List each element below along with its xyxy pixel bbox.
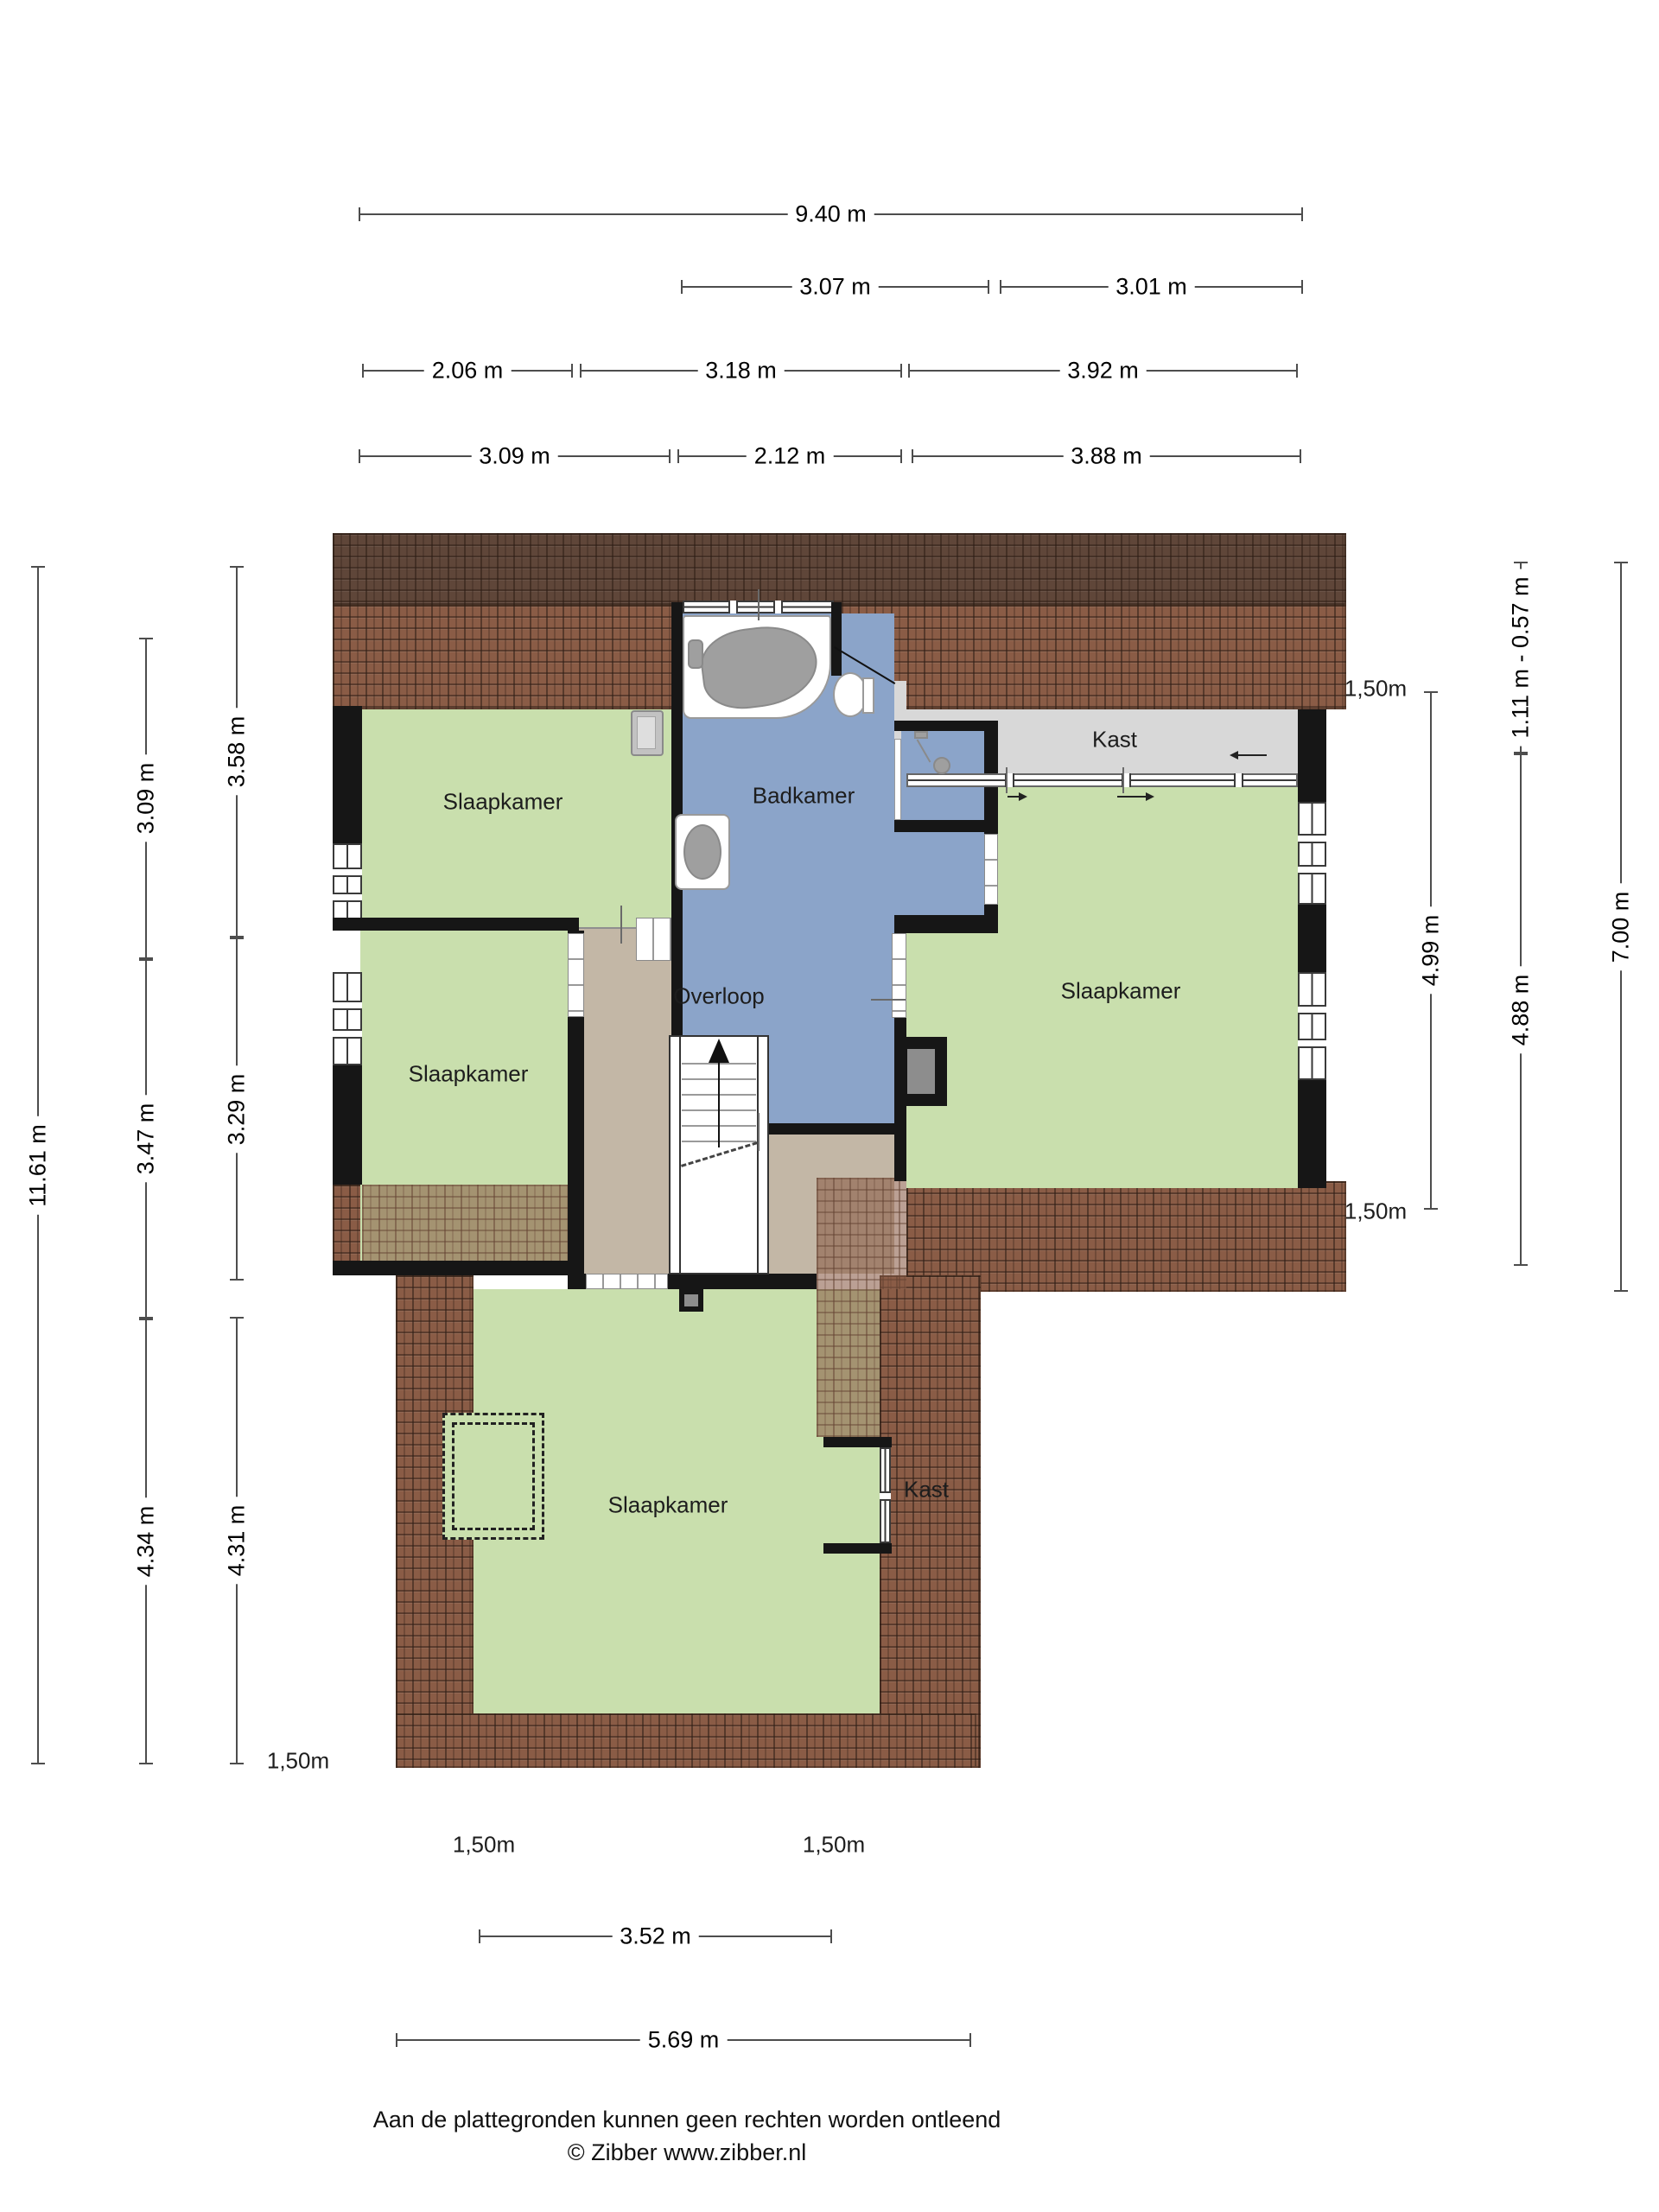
room-label-closet-bottom: Kast bbox=[904, 1477, 949, 1503]
wall-shower-top bbox=[894, 721, 998, 731]
ref-tick bbox=[758, 1113, 760, 1151]
window-closet-bottom bbox=[880, 1447, 891, 1543]
stair-stringer-left bbox=[679, 1035, 681, 1274]
wall bbox=[1298, 709, 1326, 802]
passage-topleft-bedroom bbox=[636, 918, 671, 961]
room-label-landing: Overloop bbox=[673, 983, 765, 1010]
room-label-bedroom-right: Slaapkamer bbox=[1061, 978, 1181, 1005]
dimension-label: 1.11 m - 0.57 m bbox=[1508, 569, 1535, 746]
dimension-label: 2.12 m bbox=[747, 443, 834, 470]
wall-shower-bottom bbox=[894, 820, 984, 832]
credit-text: © Zibber www.zibber.nl bbox=[568, 2139, 807, 2166]
dimension-label: 3.09 m bbox=[133, 755, 160, 842]
wall bbox=[1298, 1080, 1326, 1188]
floorplan-canvas: Slaapkamer Badkamer Kast Slaapkamer Over… bbox=[0, 0, 1659, 2212]
room-label-bedroom-top-left: Slaapkamer bbox=[443, 789, 563, 816]
dimension-label: 3.29 m bbox=[224, 1065, 251, 1153]
ref-tick bbox=[758, 589, 760, 620]
wall-closet-bottom-stub-bottom bbox=[823, 1543, 892, 1554]
shower-valve bbox=[914, 731, 928, 739]
wall bbox=[984, 905, 998, 933]
dimension-label: 3.52 m bbox=[612, 1923, 699, 1950]
wall bbox=[333, 918, 579, 931]
sink-basin bbox=[683, 824, 721, 880]
window-left-bottom bbox=[333, 972, 362, 1065]
door-bottom-bedroom bbox=[586, 1274, 668, 1289]
room-label-bedroom-mid-left: Slaapkamer bbox=[409, 1061, 529, 1088]
toilet-tank bbox=[862, 677, 874, 714]
wall bbox=[333, 706, 362, 843]
door-midleft-bedroom bbox=[568, 933, 584, 1017]
height-marker: 1,50m bbox=[267, 1748, 329, 1775]
window-right-top bbox=[1298, 802, 1326, 905]
dashed-floor-area bbox=[442, 1413, 544, 1540]
room-bathroom-nook bbox=[894, 828, 987, 915]
stair-arrow-head bbox=[709, 1039, 729, 1063]
dimension-line: 4.99 m bbox=[1430, 691, 1432, 1210]
dimension-line: 3.09 m bbox=[359, 455, 671, 457]
height-marker: 1,50m bbox=[1344, 676, 1407, 702]
arrow-right-icon bbox=[1007, 796, 1020, 798]
height-marker: 1,50m bbox=[803, 1832, 865, 1859]
dimension-line: 3.52 m bbox=[479, 1935, 832, 1937]
dimension-label: 9.40 m bbox=[787, 201, 874, 228]
window-left-top bbox=[333, 843, 362, 923]
dimension-line: 7.00 m bbox=[1620, 562, 1622, 1292]
dimension-line: 3.07 m bbox=[681, 286, 989, 288]
wall bbox=[831, 602, 842, 676]
ref-tick bbox=[1122, 767, 1124, 793]
dimension-line: 5.69 m bbox=[396, 2039, 971, 2041]
roof-top-eave bbox=[333, 533, 1346, 605]
ref-tick bbox=[871, 999, 906, 1001]
dimension-line: 4.31 m bbox=[236, 1317, 238, 1764]
ref-tick bbox=[620, 906, 622, 944]
door-bathroom-to-bedroom bbox=[984, 834, 998, 905]
dimension-line: 3.18 m bbox=[580, 370, 902, 372]
dimension-label: 4.31 m bbox=[224, 1497, 251, 1585]
dimension-label: 7.00 m bbox=[1608, 883, 1635, 970]
dimension-label: 4.34 m bbox=[133, 1498, 160, 1586]
wall bbox=[568, 1017, 584, 1274]
dimension-line: 2.12 m bbox=[677, 455, 902, 457]
dimension-line: 3.92 m bbox=[908, 370, 1298, 372]
dimension-label: 3.58 m bbox=[224, 709, 251, 796]
dimension-line: 11.61 m bbox=[37, 566, 39, 1764]
height-marker: 1,50m bbox=[453, 1832, 515, 1859]
dimension-label: 3.92 m bbox=[1059, 358, 1147, 385]
dimension-label: 11.61 m bbox=[25, 1116, 52, 1215]
wall-closet-bottom-stub-top bbox=[823, 1437, 892, 1447]
door-leaf-panel bbox=[637, 716, 656, 749]
dimension-label: 4.99 m bbox=[1418, 907, 1445, 995]
disclaimer-text: Aan de plattegronden kunnen geen rechten… bbox=[373, 2107, 1001, 2133]
dimension-line: 4.34 m bbox=[145, 1319, 147, 1764]
dimension-line: 3.58 m bbox=[236, 566, 238, 938]
roof-overlay-bottom-bedroom bbox=[817, 1289, 880, 1437]
room-label-closet-top: Kast bbox=[1092, 727, 1137, 753]
dimension-label: 3.47 m bbox=[133, 1096, 160, 1183]
dimension-line: 3.01 m bbox=[1000, 286, 1303, 288]
room-label-bedroom-bottom: Slaapkamer bbox=[608, 1492, 728, 1519]
chimney-duct-inner bbox=[907, 1049, 935, 1094]
dimension-label: 3.09 m bbox=[471, 443, 558, 470]
dimension-line: 1.11 m - 0.57 m bbox=[1520, 562, 1522, 753]
dimension-label: 2.06 m bbox=[424, 358, 512, 385]
dimension-line: 3.88 m bbox=[912, 455, 1301, 457]
wall-nook-bottom bbox=[894, 915, 993, 933]
wall bbox=[668, 1274, 817, 1289]
dimension-label: 3.88 m bbox=[1063, 443, 1150, 470]
dimension-label: 3.18 m bbox=[697, 358, 785, 385]
stair-stringer-right bbox=[757, 1035, 759, 1274]
bathtub-faucet bbox=[688, 639, 703, 669]
dimension-line: 2.06 m bbox=[362, 370, 573, 372]
dimension-label: 3.01 m bbox=[1108, 274, 1195, 301]
roof-dormer-bottom bbox=[396, 1713, 976, 1768]
dimension-line: 4.88 m bbox=[1520, 753, 1522, 1266]
stair-arrow-shaft bbox=[718, 1051, 720, 1147]
vent-duct-inner bbox=[684, 1294, 698, 1306]
door-right-bedroom bbox=[892, 933, 906, 1018]
dimension-label: 4.88 m bbox=[1508, 966, 1535, 1053]
dimension-label: 3.07 m bbox=[791, 274, 879, 301]
wall bbox=[568, 1274, 586, 1289]
wall bbox=[1298, 905, 1326, 972]
dimension-line: 3.47 m bbox=[145, 959, 147, 1319]
wall bbox=[333, 1261, 584, 1275]
wall bbox=[333, 1065, 362, 1185]
closet-sliding-track bbox=[906, 773, 1298, 787]
roof-overlay-midleft-bedroom bbox=[362, 1185, 568, 1261]
dimension-label: 5.69 m bbox=[640, 2027, 728, 2054]
dimension-line: 3.29 m bbox=[236, 938, 238, 1281]
shower-glass-door bbox=[894, 739, 901, 820]
arrow-left-icon bbox=[1237, 754, 1267, 756]
height-marker: 1,50m bbox=[1344, 1198, 1407, 1225]
roof-dormer-right bbox=[880, 1275, 981, 1768]
room-label-bathroom: Badkamer bbox=[753, 783, 855, 810]
dimension-line: 3.09 m bbox=[145, 638, 147, 959]
arrow-right-icon bbox=[1117, 796, 1147, 798]
dimension-line: 9.40 m bbox=[359, 213, 1303, 215]
ref-tick bbox=[1006, 767, 1007, 793]
shower-head bbox=[933, 757, 950, 774]
roof-overlay-landing bbox=[817, 1178, 906, 1289]
window-right-bottom bbox=[1298, 972, 1326, 1080]
room-bedroom-top-left bbox=[360, 709, 671, 929]
